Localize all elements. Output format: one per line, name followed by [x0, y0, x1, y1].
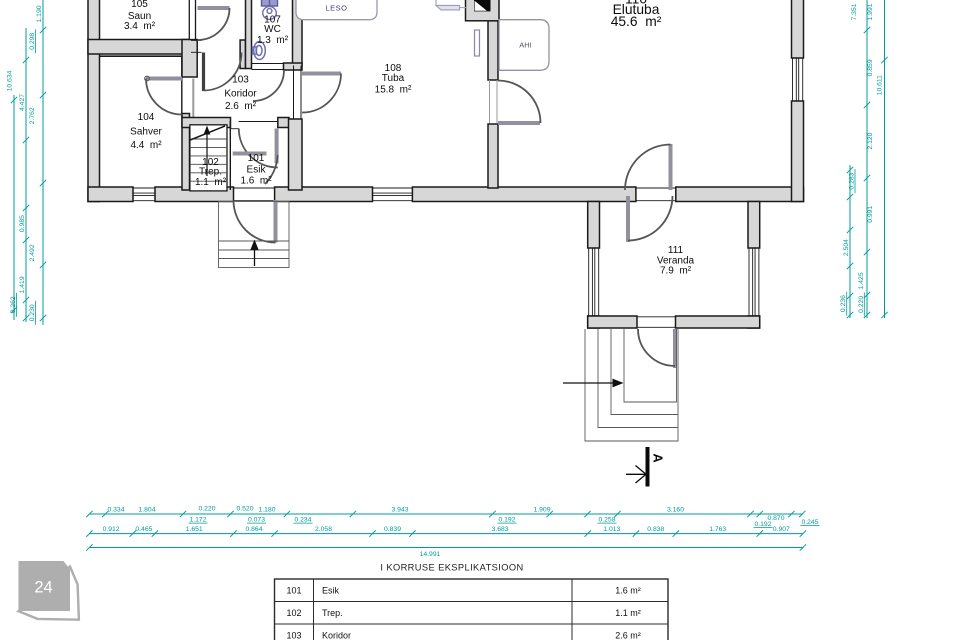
- svg-text:0.245: 0.245: [801, 519, 818, 526]
- svg-text:7.351: 7.351: [851, 3, 858, 20]
- svg-text:0.864: 0.864: [245, 526, 262, 533]
- svg-text:0.520: 0.520: [236, 506, 253, 513]
- svg-text:1.425: 1.425: [858, 272, 865, 289]
- svg-text:0.220: 0.220: [198, 506, 215, 513]
- svg-text:2.120: 2.120: [867, 132, 874, 149]
- svg-text:LESO: LESO: [325, 4, 347, 13]
- svg-text:3.943: 3.943: [391, 507, 408, 514]
- svg-text:0.912: 0.912: [103, 526, 120, 533]
- svg-text:108Tuba15.8 m²: 108Tuba15.8 m²: [375, 63, 412, 96]
- svg-text:1.909: 1.909: [533, 507, 550, 514]
- svg-text:0.838: 0.838: [647, 526, 664, 533]
- svg-text:0.220: 0.220: [858, 296, 865, 313]
- svg-text:Koridor: Koridor: [322, 631, 351, 640]
- svg-text:I KORRUSE EKSPLIKATSIOON: I KORRUSE EKSPLIKATSIOON: [380, 563, 523, 573]
- svg-text:24: 24: [34, 579, 52, 597]
- svg-text:0.991: 0.991: [867, 206, 874, 223]
- svg-text:1.6 m²: 1.6 m²: [615, 586, 641, 596]
- svg-text:1.190: 1.190: [36, 5, 43, 22]
- svg-text:0.192: 0.192: [754, 521, 771, 528]
- svg-text:10.611: 10.611: [877, 75, 884, 96]
- svg-text:1.804: 1.804: [138, 507, 155, 514]
- svg-text:2.058: 2.058: [315, 526, 332, 533]
- svg-text:2.6 m²: 2.6 m²: [615, 631, 641, 640]
- svg-text:0.859: 0.859: [867, 59, 874, 76]
- svg-text:1.180: 1.180: [258, 507, 275, 514]
- svg-text:0.073: 0.073: [248, 517, 265, 524]
- svg-text:101: 101: [286, 586, 301, 596]
- svg-text:2.504: 2.504: [843, 239, 850, 256]
- svg-text:1.991: 1.991: [867, 3, 874, 20]
- svg-text:111Veranda7.9 m²: 111Veranda7.9 m²: [657, 245, 695, 277]
- svg-text:103: 103: [286, 631, 301, 640]
- svg-text:0.907: 0.907: [773, 526, 790, 533]
- svg-text:0.230: 0.230: [29, 304, 36, 321]
- svg-text:4.427: 4.427: [19, 94, 26, 111]
- svg-text:AHI: AHI: [519, 41, 532, 50]
- svg-text:0.465: 0.465: [135, 526, 152, 533]
- svg-text:Trep.: Trep.: [322, 608, 343, 618]
- svg-text:0.192: 0.192: [498, 517, 515, 524]
- svg-text:0.234: 0.234: [294, 517, 311, 524]
- svg-text:0.334: 0.334: [107, 507, 124, 514]
- svg-text:2.492: 2.492: [29, 244, 36, 261]
- svg-text:107WC1.3 m²: 107WC1.3 m²: [257, 15, 289, 47]
- svg-text:2.762: 2.762: [29, 107, 36, 124]
- svg-text:3.683: 3.683: [492, 526, 509, 533]
- svg-text:0.985: 0.985: [19, 215, 26, 232]
- svg-text:104Sahver4.4 m²: 104Sahver4.4 m²: [130, 112, 162, 151]
- svg-text:0.839: 0.839: [384, 526, 401, 533]
- svg-text:105Saun3.4 m²: 105Saun3.4 m²: [124, 0, 156, 32]
- svg-text:0.298: 0.298: [29, 33, 36, 50]
- svg-text:102: 102: [286, 608, 301, 618]
- svg-text:101Esik1.6 m²: 101Esik1.6 m²: [240, 153, 272, 187]
- svg-text:Esik: Esik: [322, 586, 340, 596]
- svg-text:10.634: 10.634: [7, 70, 14, 91]
- svg-text:1.1 m²: 1.1 m²: [615, 608, 641, 618]
- svg-text:1.763: 1.763: [709, 526, 726, 533]
- svg-text:0.262: 0.262: [10, 296, 17, 313]
- svg-text:1.172: 1.172: [189, 517, 206, 524]
- svg-text:14.991: 14.991: [420, 551, 441, 558]
- svg-text:1.651: 1.651: [186, 526, 203, 533]
- svg-text:1.013: 1.013: [603, 526, 620, 533]
- svg-text:0.258: 0.258: [598, 517, 615, 524]
- svg-text:110Elutuba45.6 m²: 110Elutuba45.6 m²: [611, 0, 662, 29]
- svg-text:1.419: 1.419: [19, 276, 26, 293]
- svg-text:3.160: 3.160: [667, 507, 684, 514]
- svg-text:0.236: 0.236: [840, 295, 847, 312]
- svg-text:A: A: [651, 453, 666, 463]
- svg-text:0.283: 0.283: [849, 172, 856, 189]
